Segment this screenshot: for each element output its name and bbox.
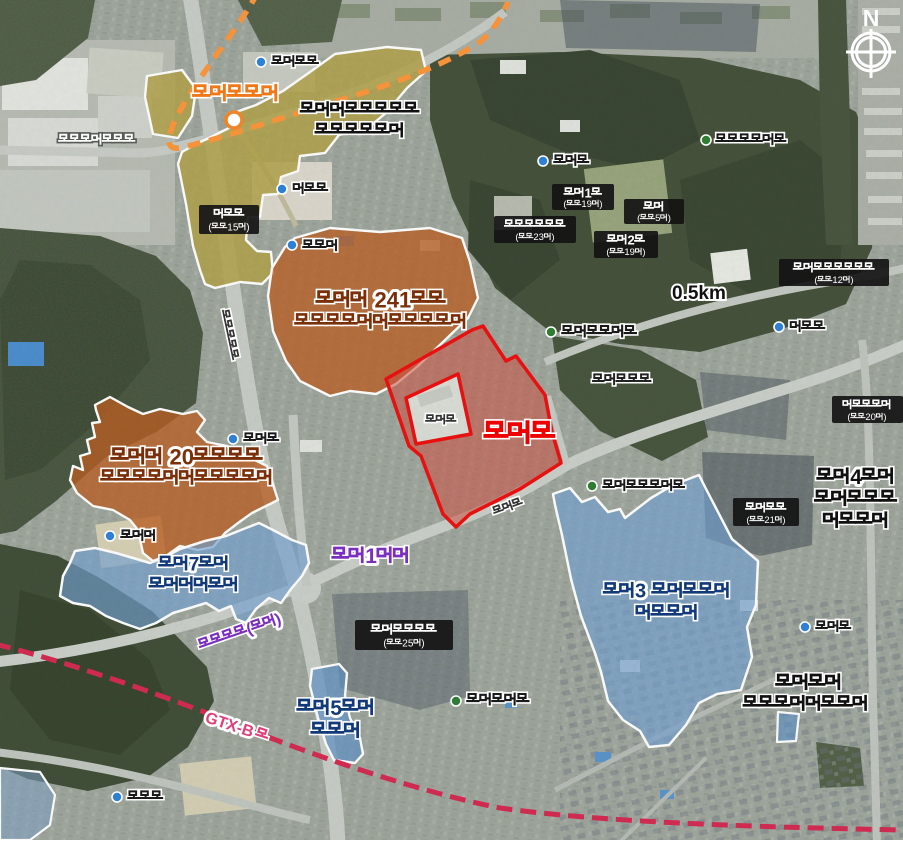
- svg-text:): ): [642, 247, 645, 258]
- svg-text:5: 5: [330, 697, 342, 720]
- svg-text:): ): [850, 275, 853, 286]
- svg-text:): ): [421, 638, 424, 649]
- svg-text:): ): [599, 199, 602, 210]
- svg-text:2: 2: [628, 232, 635, 247]
- svg-text:3: 3: [635, 581, 646, 603]
- svg-text:): ): [246, 222, 249, 233]
- svg-text:): ): [782, 515, 785, 526]
- svg-text:5: 5: [655, 213, 660, 224]
- svg-text:12: 12: [832, 275, 843, 286]
- svg-text:0.5km: 0.5km: [672, 283, 726, 304]
- svg-text:4: 4: [850, 466, 862, 489]
- svg-text:N: N: [863, 5, 880, 31]
- svg-text:241: 241: [375, 287, 412, 312]
- svg-text:25: 25: [402, 638, 414, 649]
- svg-text:): ): [668, 213, 671, 224]
- svg-text:1: 1: [365, 545, 377, 568]
- svg-text:20: 20: [865, 412, 876, 423]
- svg-text:19: 19: [624, 247, 635, 258]
- svg-text:21: 21: [764, 515, 775, 526]
- svg-text:19: 19: [581, 199, 592, 210]
- svg-text:20: 20: [170, 444, 194, 469]
- svg-text:23: 23: [533, 232, 544, 243]
- svg-text:7: 7: [189, 554, 200, 575]
- svg-text:15: 15: [227, 222, 239, 233]
- svg-text:1: 1: [585, 185, 592, 200]
- svg-text:): ): [883, 412, 886, 423]
- svg-text:): ): [551, 232, 554, 243]
